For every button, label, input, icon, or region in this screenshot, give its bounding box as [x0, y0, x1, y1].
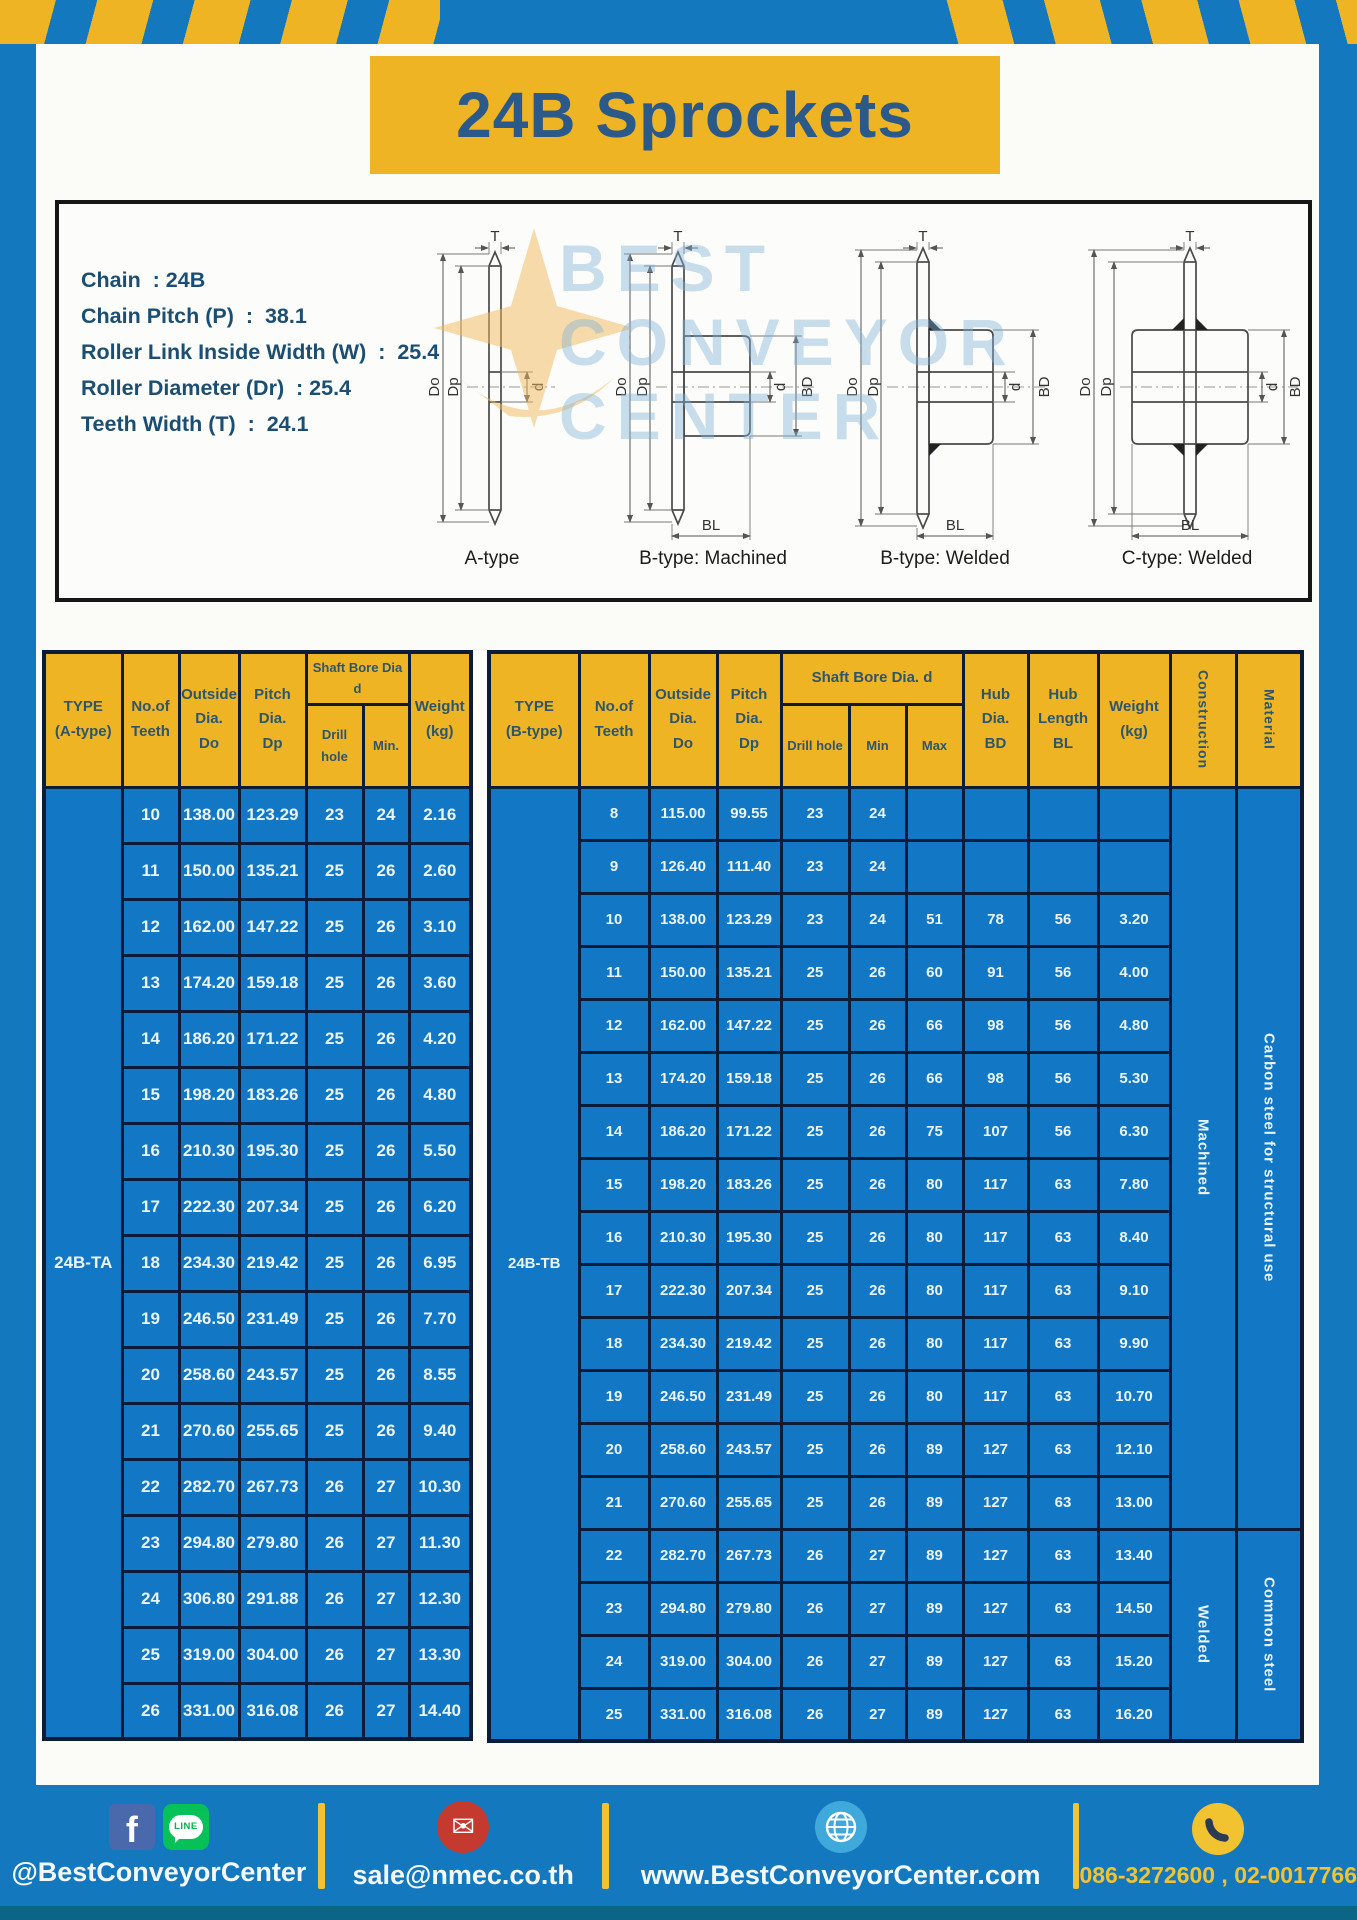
cell-hub-length: 63 [1028, 1423, 1098, 1476]
header-pitch-dia-a: Pitch Dia. Dp [239, 652, 306, 787]
cell-drill-hole: 25 [306, 1403, 363, 1459]
cell-teeth: 16 [122, 1123, 179, 1179]
cell-min: 27 [363, 1683, 409, 1739]
social-icons: f LINE [109, 1804, 209, 1850]
cell-max: 51 [906, 893, 963, 946]
caption-c-type-welded: C-type: Welded [1122, 548, 1253, 570]
cell-min: 27 [363, 1571, 409, 1627]
cell-drill-hole: 25 [781, 1476, 849, 1529]
cell-min: 24 [363, 787, 409, 843]
cell-weight: 8.40 [1098, 1211, 1170, 1264]
social-handle-text: @BestConveyorCenter [11, 1857, 306, 1888]
cell-pitch-dia: 159.18 [717, 1052, 781, 1105]
cell-max: 60 [906, 946, 963, 999]
cell-pitch-dia: 231.49 [239, 1291, 306, 1347]
cell-max: 89 [906, 1423, 963, 1476]
b-type-machined-drawing: T Do Dp d BD [608, 230, 818, 542]
cell-min: 26 [849, 1370, 906, 1423]
cell-max: 80 [906, 1317, 963, 1370]
cell-outside-dia: 319.00 [649, 1635, 717, 1688]
cell-drill-hole: 25 [306, 1235, 363, 1291]
cell-teeth: 12 [122, 899, 179, 955]
header-type-b: TYPE (B-type) [489, 652, 579, 787]
cell-pitch-dia: 316.08 [717, 1688, 781, 1741]
cell-pitch-dia: 195.30 [239, 1123, 306, 1179]
cell-hub-dia: 117 [963, 1370, 1028, 1423]
cell-teeth: 12 [579, 999, 649, 1052]
svg-text:d: d [772, 383, 789, 391]
cell-drill-hole: 26 [306, 1515, 363, 1571]
cell-weight: 4.20 [409, 1011, 471, 1067]
caption-b-type-welded: B-type: Welded [880, 548, 1010, 570]
drawing-c-type-welded: T Do Dp d BD [1072, 230, 1302, 570]
cell-drill-hole: 26 [781, 1688, 849, 1741]
cell-hub-dia: 98 [963, 1052, 1028, 1105]
cell-hub-length: 56 [1028, 999, 1098, 1052]
cell-min: 24 [849, 840, 906, 893]
spec-chain: Chain : 24B [81, 262, 439, 298]
cell-weight: 10.30 [409, 1459, 471, 1515]
svg-text:T: T [918, 230, 927, 245]
cell-outside-dia: 210.30 [649, 1211, 717, 1264]
cell-min: 26 [363, 1123, 409, 1179]
cell-outside-dia: 282.70 [649, 1529, 717, 1582]
cell-weight: 5.30 [1098, 1052, 1170, 1105]
svg-text:Do: Do [844, 377, 861, 396]
cell-pitch-dia: 135.21 [717, 946, 781, 999]
header-outside-dia-b: Outside Dia. Do [649, 652, 717, 787]
phone-icon [1192, 1803, 1244, 1855]
cell-teeth: 14 [122, 1011, 179, 1067]
spec-teeth-width: Teeth Width (T) : 24.1 [81, 406, 439, 442]
cell-drill-hole: 25 [306, 1011, 363, 1067]
cell-drill-hole: 23 [781, 893, 849, 946]
cell-hub-length [1028, 787, 1098, 840]
cell-min: 26 [363, 1403, 409, 1459]
cell-drill-hole: 25 [781, 1423, 849, 1476]
cell-hub-length: 56 [1028, 1052, 1098, 1105]
header-pitch-dia-b: Pitch Dia. Dp [717, 652, 781, 787]
cell-outside-dia: 150.00 [649, 946, 717, 999]
cell-outside-dia: 198.20 [649, 1158, 717, 1211]
cell-pitch-dia: 147.22 [239, 899, 306, 955]
cell-outside-dia: 258.60 [179, 1347, 239, 1403]
cell-outside-dia: 222.30 [179, 1179, 239, 1235]
svg-text:d: d [1264, 383, 1281, 391]
cell-drill-hole: 23 [781, 787, 849, 840]
caption-a-type: A-type [465, 548, 520, 570]
cell-teeth: 11 [579, 946, 649, 999]
cell-outside-dia: 331.00 [179, 1683, 239, 1739]
cell-min: 26 [363, 955, 409, 1011]
cell-drill-hole: 25 [781, 1370, 849, 1423]
cell-outside-dia: 246.50 [649, 1370, 717, 1423]
cell-min: 26 [849, 1423, 906, 1476]
cell-drill-hole: 26 [781, 1529, 849, 1582]
hazard-stripes-left [0, 0, 440, 44]
cell-outside-dia: 174.20 [179, 955, 239, 1011]
header-outside-dia-a: Outside Dia. Do [179, 652, 239, 787]
cell-outside-dia: 162.00 [179, 899, 239, 955]
svg-text:Do: Do [613, 377, 630, 396]
svg-text:Dp: Dp [445, 377, 462, 396]
cell-weight: 12.10 [1098, 1423, 1170, 1476]
cell-pitch-dia: 219.42 [717, 1317, 781, 1370]
header-shaft-bore-a: Shaft Bore Dia d [306, 652, 409, 704]
svg-text:d: d [1007, 383, 1024, 391]
cell-weight: 2.16 [409, 787, 471, 843]
cell-drill-hole: 25 [306, 1123, 363, 1179]
header-drill-hole-b: Drill hole [781, 704, 849, 787]
material-cell: Carbon steel for structural use [1236, 787, 1302, 1529]
cell-min: 27 [363, 1515, 409, 1571]
cell-outside-dia: 270.60 [649, 1476, 717, 1529]
cell-max [906, 840, 963, 893]
cell-weight: 3.60 [409, 955, 471, 1011]
page-title: 24B Sprockets [456, 78, 914, 152]
cell-min: 27 [849, 1582, 906, 1635]
cell-outside-dia: 126.40 [649, 840, 717, 893]
cell-outside-dia: 138.00 [179, 787, 239, 843]
cell-weight: 9.40 [409, 1403, 471, 1459]
cell-teeth: 21 [122, 1403, 179, 1459]
cell-pitch-dia: 304.00 [717, 1635, 781, 1688]
cell-pitch-dia: 219.42 [239, 1235, 306, 1291]
cell-teeth: 15 [122, 1067, 179, 1123]
footer-divider [318, 1803, 325, 1889]
cell-pitch-dia: 183.26 [717, 1158, 781, 1211]
cell-drill-hole: 26 [306, 1683, 363, 1739]
header-min-b: Min [849, 704, 906, 787]
construction-cell: Machined [1170, 787, 1236, 1529]
cell-pitch-dia: 279.80 [239, 1515, 306, 1571]
cell-teeth: 20 [122, 1347, 179, 1403]
cell-drill-hole: 26 [306, 1627, 363, 1683]
cell-weight: 9.90 [1098, 1317, 1170, 1370]
cell-drill-hole: 25 [781, 1317, 849, 1370]
cell-pitch-dia: 267.73 [239, 1459, 306, 1515]
cell-weight: 10.70 [1098, 1370, 1170, 1423]
cell-weight: 9.10 [1098, 1264, 1170, 1317]
cell-teeth: 18 [122, 1235, 179, 1291]
svg-text:T: T [1185, 230, 1194, 245]
cell-drill-hole: 25 [781, 946, 849, 999]
cell-drill-hole: 25 [306, 1347, 363, 1403]
cell-weight: 6.30 [1098, 1105, 1170, 1158]
table-b-row: 22282.70267.732627891276313.40WeldedComm… [489, 1529, 1302, 1582]
cell-min: 26 [849, 1476, 906, 1529]
cell-drill-hole: 25 [781, 1052, 849, 1105]
cell-outside-dia: 331.00 [649, 1688, 717, 1741]
cell-hub-length: 63 [1028, 1529, 1098, 1582]
cell-weight: 3.20 [1098, 893, 1170, 946]
footer-social-group: f LINE @BestConveyorCenter [0, 1804, 318, 1888]
table-a-type-cell: 24B-TA [44, 787, 122, 1739]
header-material: Material [1236, 652, 1302, 787]
cell-pitch-dia: 207.34 [717, 1264, 781, 1317]
spec-chain-pitch: Chain Pitch (P) : 38.1 [81, 298, 439, 334]
cell-teeth: 22 [579, 1529, 649, 1582]
cell-outside-dia: 234.30 [649, 1317, 717, 1370]
footer-website-group: www.BestConveyorCenter.com [609, 1801, 1073, 1891]
cell-hub-length: 63 [1028, 1582, 1098, 1635]
cell-pitch-dia: 316.08 [239, 1683, 306, 1739]
cell-max: 80 [906, 1158, 963, 1211]
cell-hub-dia: 117 [963, 1158, 1028, 1211]
cell-teeth: 14 [579, 1105, 649, 1158]
cell-weight: 2.60 [409, 843, 471, 899]
cell-pitch-dia: 147.22 [717, 999, 781, 1052]
cell-weight: 8.55 [409, 1347, 471, 1403]
phone-text: 086-3272600 , 02-0017766 [1079, 1862, 1357, 1889]
cell-hub-dia: 127 [963, 1476, 1028, 1529]
cell-teeth: 23 [122, 1515, 179, 1571]
chain-specs: Chain : 24B Chain Pitch (P) : 38.1 Rolle… [81, 262, 439, 442]
cell-pitch-dia: 111.40 [717, 840, 781, 893]
cell-max: 89 [906, 1688, 963, 1741]
cell-min: 27 [849, 1688, 906, 1741]
cell-min: 26 [849, 946, 906, 999]
cell-max: 66 [906, 1052, 963, 1105]
svg-text:T: T [673, 230, 682, 245]
table-b-type: TYPE (B-type) No.of Teeth Outside Dia. D… [487, 650, 1304, 1743]
cell-weight: 6.95 [409, 1235, 471, 1291]
cell-drill-hole: 25 [781, 1211, 849, 1264]
header-max-b: Max [906, 704, 963, 787]
cell-max: 89 [906, 1529, 963, 1582]
cell-hub-dia: 78 [963, 893, 1028, 946]
cell-drill-hole: 25 [306, 1179, 363, 1235]
header-min-a: Min. [363, 704, 409, 787]
cell-hub-length: 63 [1028, 1370, 1098, 1423]
cell-teeth: 15 [579, 1158, 649, 1211]
cell-weight: 4.80 [409, 1067, 471, 1123]
c-type-welded-drawing: T Do Dp d BD [1072, 230, 1302, 542]
cell-drill-hole: 25 [306, 1067, 363, 1123]
cell-weight: 6.20 [409, 1179, 471, 1235]
cell-min: 26 [849, 1211, 906, 1264]
spec-roller-diameter: Roller Diameter (Dr) : 25.4 [81, 370, 439, 406]
cell-weight: 13.40 [1098, 1529, 1170, 1582]
cell-drill-hole: 25 [781, 1264, 849, 1317]
cell-outside-dia: 234.30 [179, 1235, 239, 1291]
cell-outside-dia: 174.20 [649, 1052, 717, 1105]
cell-outside-dia: 186.20 [649, 1105, 717, 1158]
cell-min: 24 [849, 893, 906, 946]
cell-min: 26 [363, 1011, 409, 1067]
cell-teeth: 8 [579, 787, 649, 840]
cell-max: 89 [906, 1476, 963, 1529]
header-type-a: TYPE (A-type) [44, 652, 122, 787]
content-area: 24B Sprockets BEST CONVEYOR CENTER Chain… [36, 44, 1319, 1785]
cell-min: 26 [363, 843, 409, 899]
cell-hub-dia: 127 [963, 1688, 1028, 1741]
footer-email-group: ✉ sale@nmec.co.th [325, 1801, 602, 1891]
cell-outside-dia: 246.50 [179, 1291, 239, 1347]
footer-contact-bar: f LINE @BestConveyorCenter ✉ sale@nmec.c… [0, 1785, 1357, 1906]
cell-outside-dia: 162.00 [649, 999, 717, 1052]
cell-weight: 4.00 [1098, 946, 1170, 999]
cell-min: 26 [363, 1179, 409, 1235]
header-teeth-a: No.of Teeth [122, 652, 179, 787]
cell-min: 27 [849, 1529, 906, 1582]
footer-divider [602, 1803, 609, 1889]
cell-outside-dia: 186.20 [179, 1011, 239, 1067]
cell-min: 27 [363, 1627, 409, 1683]
header-weight-b: Weight (kg) [1098, 652, 1170, 787]
cell-outside-dia: 222.30 [649, 1264, 717, 1317]
cell-max: 75 [906, 1105, 963, 1158]
cell-drill-hole: 26 [306, 1571, 363, 1627]
cell-hub-length: 63 [1028, 1635, 1098, 1688]
cell-hub-dia: 91 [963, 946, 1028, 999]
cell-hub-dia: 117 [963, 1317, 1028, 1370]
svg-text:BL: BL [702, 517, 720, 534]
email-icon: ✉ [437, 1801, 489, 1853]
header-construction: Construction [1170, 652, 1236, 787]
header-drill-hole-a: Drill hole [306, 704, 363, 787]
cell-drill-hole: 25 [781, 1158, 849, 1211]
cell-drill-hole: 25 [781, 999, 849, 1052]
cell-weight: 13.30 [409, 1627, 471, 1683]
cell-hub-length: 63 [1028, 1158, 1098, 1211]
caption-b-type-machined: B-type: Machined [639, 548, 787, 570]
svg-text:d: d [530, 383, 547, 391]
cell-pitch-dia: 207.34 [239, 1179, 306, 1235]
cell-weight [1098, 787, 1170, 840]
cell-outside-dia: 138.00 [649, 893, 717, 946]
cell-min: 26 [363, 1235, 409, 1291]
cell-outside-dia: 150.00 [179, 843, 239, 899]
cell-teeth: 21 [579, 1476, 649, 1529]
table-b-type-cell: 24B-TB [489, 787, 579, 1741]
cell-min: 26 [849, 1105, 906, 1158]
drawing-b-type-welded: T Do Dp d BD [839, 230, 1051, 570]
cell-weight: 13.00 [1098, 1476, 1170, 1529]
cell-drill-hole: 25 [306, 899, 363, 955]
cell-teeth: 10 [579, 893, 649, 946]
cell-pitch-dia: 243.57 [717, 1423, 781, 1476]
cell-hub-length: 56 [1028, 1105, 1098, 1158]
cell-pitch-dia: 99.55 [717, 787, 781, 840]
cell-pitch-dia: 255.65 [717, 1476, 781, 1529]
cell-hub-length: 63 [1028, 1317, 1098, 1370]
cell-hub-length: 63 [1028, 1264, 1098, 1317]
cell-drill-hole: 25 [781, 1105, 849, 1158]
cell-max [906, 787, 963, 840]
cell-outside-dia: 294.80 [179, 1515, 239, 1571]
diagram-panel: BEST CONVEYOR CENTER Chain : 24B Chain P… [55, 200, 1312, 602]
cell-pitch-dia: 135.21 [239, 843, 306, 899]
spec-sheet-page: 24B Sprockets BEST CONVEYOR CENTER Chain… [0, 0, 1357, 1920]
cell-weight: 4.80 [1098, 999, 1170, 1052]
sprocket-drawings: T Do Dp d A-type [397, 218, 1302, 570]
drawing-b-type-machined: T Do Dp d BD [608, 230, 818, 570]
svg-text:Dp: Dp [865, 377, 882, 396]
table-b-row: 24B-TB8115.0099.552324MachinedCarbon ste… [489, 787, 1302, 840]
cell-pitch-dia: 123.29 [239, 787, 306, 843]
cell-weight: 11.30 [409, 1515, 471, 1571]
title-banner: 24B Sprockets [370, 56, 1000, 174]
cell-pitch-dia: 195.30 [717, 1211, 781, 1264]
cell-pitch-dia: 267.73 [717, 1529, 781, 1582]
website-text: www.BestConveyorCenter.com [641, 1860, 1041, 1891]
spec-roller-link-width: Roller Link Inside Width (W) : 25.4 [81, 334, 439, 370]
cell-teeth: 23 [579, 1582, 649, 1635]
cell-drill-hole: 25 [306, 1291, 363, 1347]
cell-weight [1098, 840, 1170, 893]
cell-hub-length: 63 [1028, 1476, 1098, 1529]
cell-max: 89 [906, 1582, 963, 1635]
cell-drill-hole: 23 [781, 840, 849, 893]
cell-hub-length: 56 [1028, 946, 1098, 999]
cell-outside-dia: 306.80 [179, 1571, 239, 1627]
cell-min: 26 [849, 1158, 906, 1211]
cell-teeth: 11 [122, 843, 179, 899]
cell-pitch-dia: 304.00 [239, 1627, 306, 1683]
footer-divider [1073, 1803, 1080, 1889]
cell-pitch-dia: 279.80 [717, 1582, 781, 1635]
cell-teeth: 17 [122, 1179, 179, 1235]
cell-min: 26 [363, 1067, 409, 1123]
cell-drill-hole: 26 [781, 1582, 849, 1635]
cell-weight: 16.20 [1098, 1688, 1170, 1741]
cell-teeth: 10 [122, 787, 179, 843]
hazard-stripes-right [917, 0, 1357, 44]
cell-teeth: 9 [579, 840, 649, 893]
cell-outside-dia: 294.80 [649, 1582, 717, 1635]
cell-weight: 3.10 [409, 899, 471, 955]
cell-hub-length: 63 [1028, 1688, 1098, 1741]
svg-text:Do: Do [1077, 377, 1094, 396]
cell-teeth: 13 [579, 1052, 649, 1105]
cell-outside-dia: 270.60 [179, 1403, 239, 1459]
cell-max: 66 [906, 999, 963, 1052]
cell-teeth: 13 [122, 955, 179, 1011]
cell-teeth: 22 [122, 1459, 179, 1515]
cell-weight: 7.70 [409, 1291, 471, 1347]
table-a-row: 24B-TA10138.00123.2923242.16 [44, 787, 471, 843]
footer-phone-group: 086-3272600 , 02-0017766 [1079, 1803, 1357, 1889]
cell-outside-dia: 319.00 [179, 1627, 239, 1683]
cell-hub-dia: 98 [963, 999, 1028, 1052]
cell-outside-dia: 210.30 [179, 1123, 239, 1179]
cell-pitch-dia: 291.88 [239, 1571, 306, 1627]
cell-pitch-dia: 171.22 [717, 1105, 781, 1158]
bottom-edge-strip [0, 1906, 1357, 1920]
cell-min: 26 [849, 1264, 906, 1317]
svg-text:BD: BD [1036, 376, 1051, 397]
cell-weight: 7.80 [1098, 1158, 1170, 1211]
cell-hub-dia: 127 [963, 1423, 1028, 1476]
cell-pitch-dia: 171.22 [239, 1011, 306, 1067]
cell-max: 80 [906, 1370, 963, 1423]
cell-hub-dia: 117 [963, 1211, 1028, 1264]
cell-pitch-dia: 123.29 [717, 893, 781, 946]
cell-hub-length: 56 [1028, 893, 1098, 946]
facebook-icon: f [109, 1804, 155, 1850]
globe-icon [815, 1801, 867, 1853]
svg-text:Dp: Dp [634, 377, 651, 396]
cell-teeth: 19 [579, 1370, 649, 1423]
cell-drill-hole: 26 [781, 1635, 849, 1688]
header-hub-length-b: Hub Length BL [1028, 652, 1098, 787]
cell-outside-dia: 258.60 [649, 1423, 717, 1476]
cell-pitch-dia: 231.49 [717, 1370, 781, 1423]
cell-drill-hole: 26 [306, 1459, 363, 1515]
material-cell: Common steel [1236, 1529, 1302, 1741]
cell-weight: 14.50 [1098, 1582, 1170, 1635]
